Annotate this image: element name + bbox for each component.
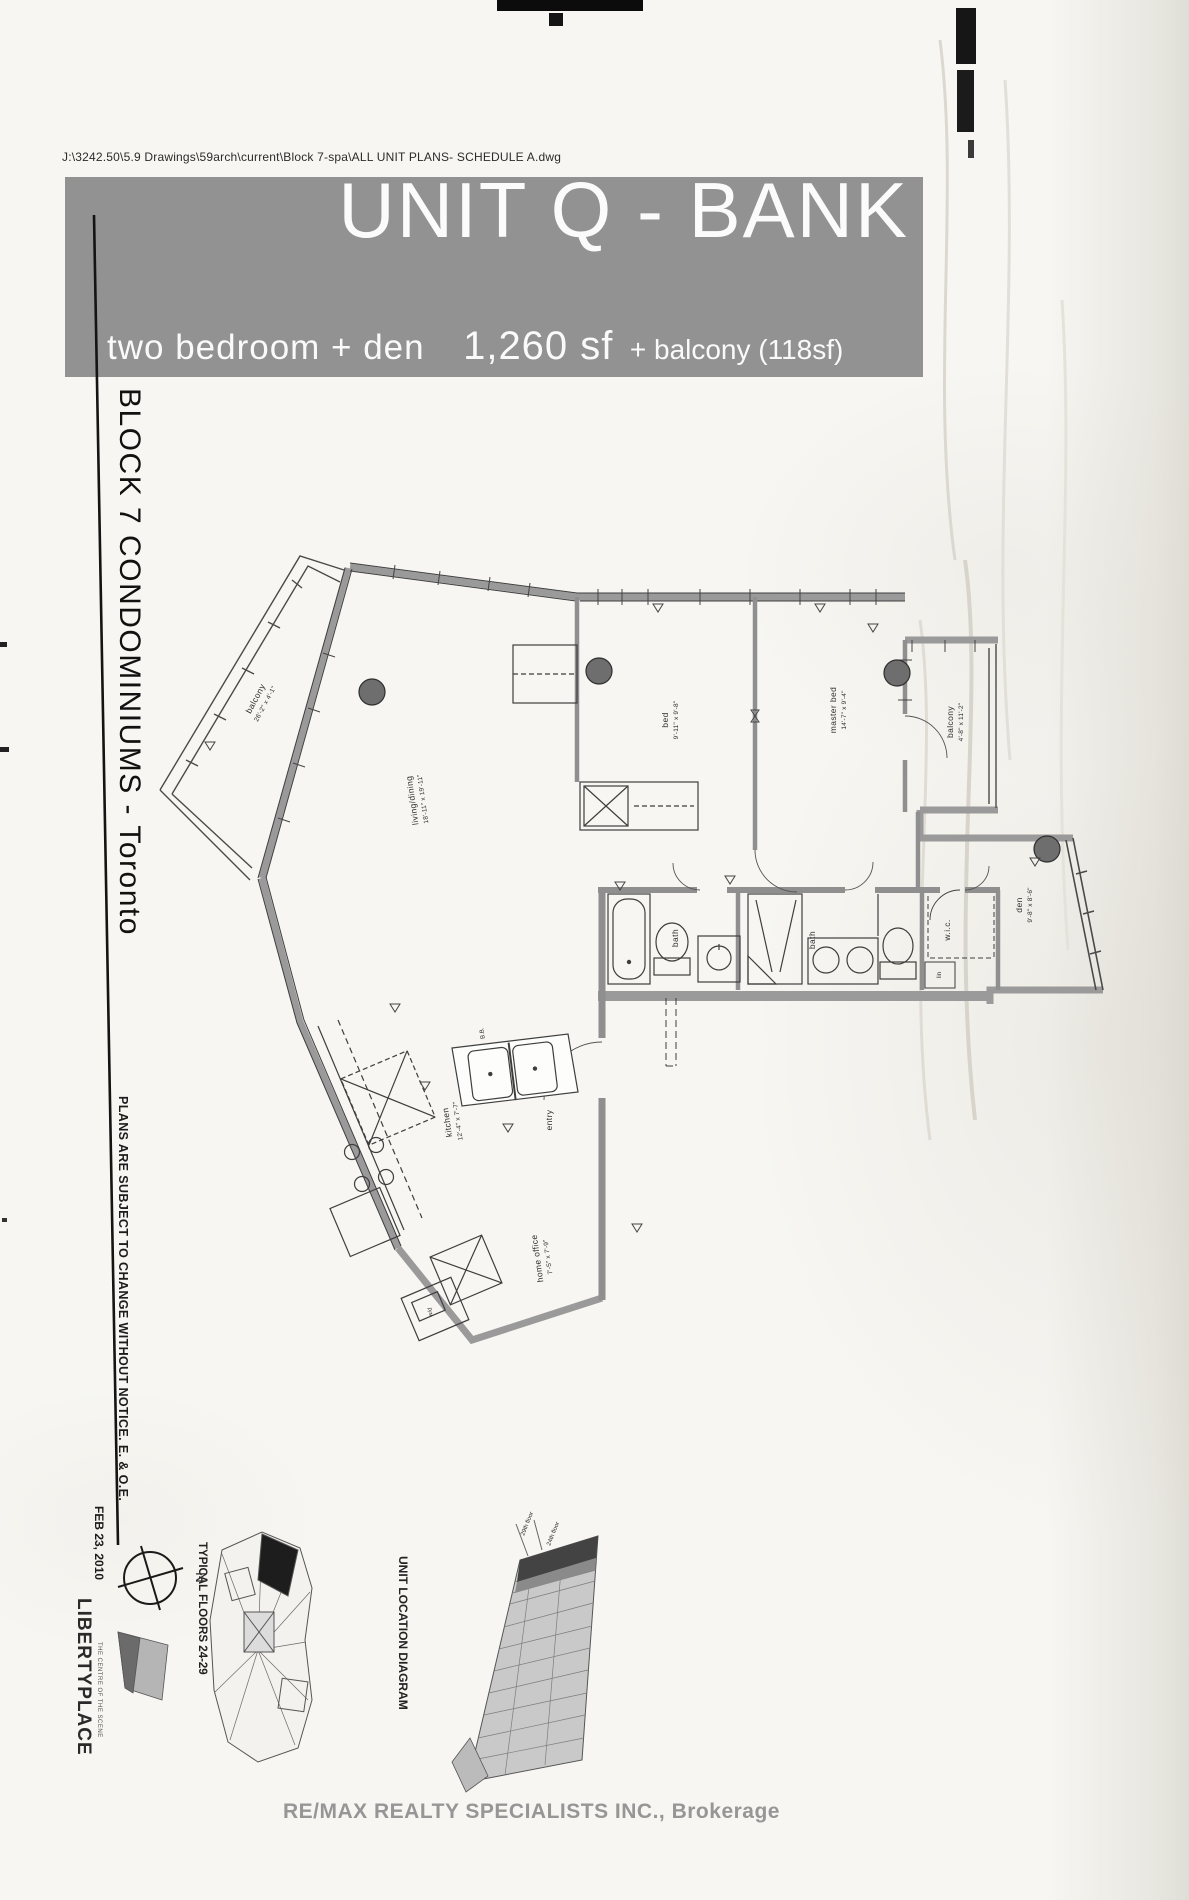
- scanned-floorplan-page: { "page": { "file_path": "J:\\3242.50\\5…: [0, 0, 1189, 1900]
- wic-label: w.i.c.: [942, 919, 952, 941]
- den-window-wall: [1066, 838, 1103, 990]
- triangle-markers: [205, 604, 1040, 1232]
- sidebar-rule: [94, 215, 118, 1545]
- liberty-place-logo-icon: [118, 1632, 168, 1700]
- bed-closet: [513, 645, 577, 703]
- columns: [359, 658, 1060, 862]
- balcony-right-label: balcony: [945, 706, 955, 738]
- tower-rendering: 29th floor 24th floor: [452, 1511, 598, 1792]
- den-label: den: [1014, 897, 1024, 912]
- bed-dim: 9'-11" x 9'-8": [673, 700, 680, 739]
- dashed-bulkhead: [666, 998, 676, 1066]
- plan-drawing-layer: balcony 26'-2" x 4'-1" living/dining 18'…: [0, 0, 1189, 1900]
- floor-top-label: 29th floor: [520, 1511, 535, 1536]
- north-compass-icon: N: [118, 1546, 209, 1610]
- floor-plan: balcony 26'-2" x 4'-1" living/dining 18'…: [160, 556, 1103, 1341]
- entry-label: entry: [544, 1109, 554, 1130]
- bath1-label: bath: [670, 929, 680, 947]
- linen-label: lin: [937, 972, 943, 978]
- floor-bottom-label: 24th floor: [546, 1521, 561, 1546]
- key-plan-diagram: [210, 1532, 312, 1762]
- balcony-right-dim: 4'-8" x 11'-2": [958, 702, 965, 741]
- bath2-label: bath: [807, 931, 817, 949]
- home-office-dim: 7'-5" x 7'-9": [542, 1238, 554, 1274]
- wic-closet: [925, 890, 994, 988]
- balcony-left-railing: [160, 556, 344, 880]
- laundry-fixtures: [401, 1235, 502, 1341]
- north-label: N: [192, 1572, 209, 1583]
- bath2-fixtures: [748, 894, 916, 984]
- interior-walls: [577, 597, 1000, 1300]
- master-dim: 14'-7" x 9'-4": [841, 690, 848, 730]
- hall-closet: [580, 782, 698, 830]
- exterior-walls: [262, 567, 1103, 1340]
- balcony-right-railing: [989, 644, 996, 808]
- den-dim: 9'-8" x 8'-6": [1027, 887, 1034, 923]
- master-label: master bed: [828, 687, 838, 734]
- kitchen-label: kitchen: [440, 1107, 454, 1138]
- wd-label: w/d: [427, 1307, 434, 1318]
- bb-label: B.B.: [479, 1027, 487, 1039]
- bed-label: bed: [660, 712, 670, 727]
